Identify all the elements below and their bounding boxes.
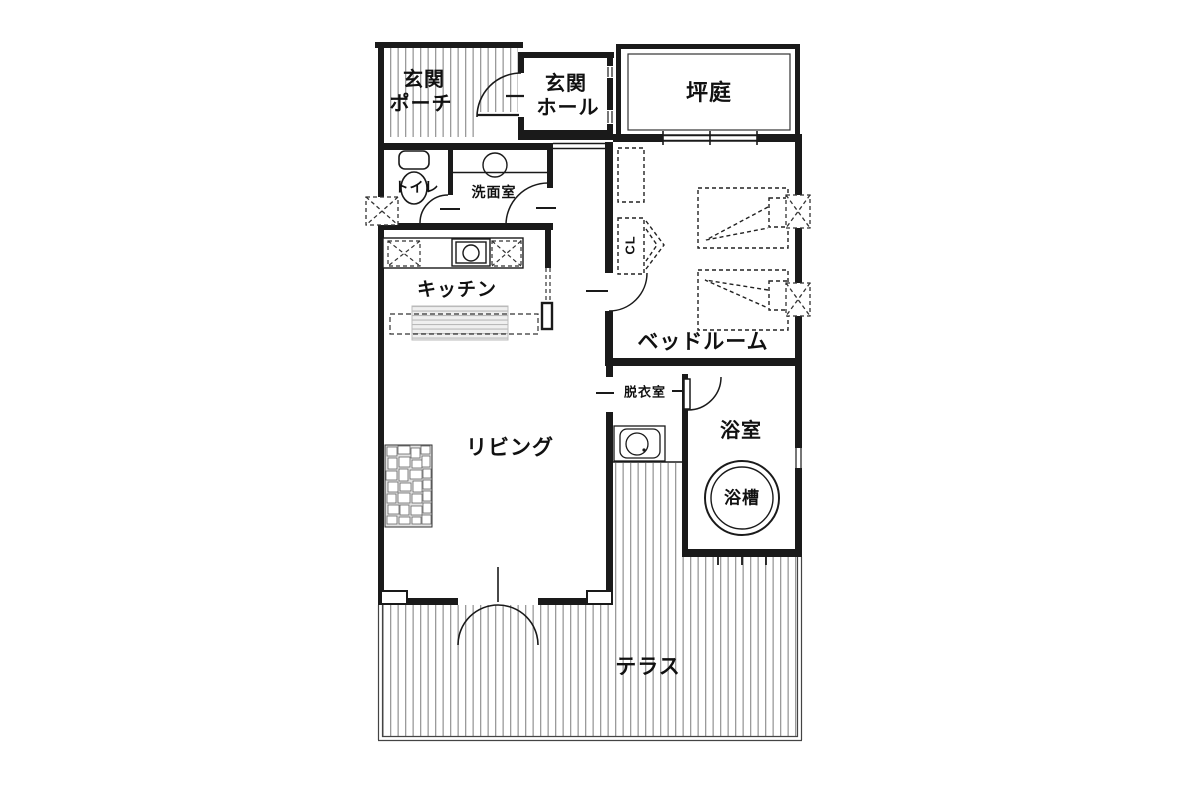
bedroom-closet bbox=[618, 148, 664, 274]
toilet-window bbox=[366, 197, 398, 225]
living-stone-feature bbox=[385, 445, 432, 527]
bed-2-arrow bbox=[705, 280, 768, 308]
corridor-doorway bbox=[553, 144, 605, 149]
bedroom-beds bbox=[698, 188, 788, 330]
washroom-label: 洗面室 bbox=[472, 185, 517, 199]
kitchen-pillar bbox=[542, 303, 552, 329]
hall-label-line1: 玄関 bbox=[545, 74, 587, 94]
bedroom-label: ベッドルーム bbox=[637, 332, 768, 353]
courtyard-window bbox=[663, 131, 757, 145]
bed-2 bbox=[698, 270, 788, 330]
porch-hatch bbox=[383, 47, 518, 137]
bed-1-pillow bbox=[769, 198, 787, 227]
dressing-label: 脱衣室 bbox=[624, 386, 666, 399]
toilet-fixture bbox=[399, 151, 429, 204]
bath-side-window bbox=[794, 448, 803, 468]
kitchen-counter bbox=[383, 238, 523, 268]
bed-1 bbox=[698, 188, 788, 248]
bath-label: 浴室 bbox=[720, 421, 762, 441]
bathtub-label: 浴槽 bbox=[724, 490, 760, 507]
washroom-sink bbox=[453, 153, 547, 177]
bed-1-arrow bbox=[706, 207, 768, 240]
porch-label-line2: ポーチ bbox=[390, 94, 453, 114]
kitchen-label: キッチン bbox=[417, 281, 497, 300]
floor-plan-drawing bbox=[0, 0, 1200, 800]
toilet-label: トイレ bbox=[395, 180, 440, 194]
courtyard-label: 坪庭 bbox=[686, 82, 732, 104]
bedroom-door bbox=[586, 273, 647, 311]
toilet-door bbox=[420, 195, 460, 223]
terrace-label: テラス bbox=[615, 657, 681, 678]
kitchen-pass-through bbox=[542, 268, 552, 329]
kitchen-island bbox=[390, 306, 538, 340]
closet-label: CL bbox=[624, 235, 637, 254]
floor-plan: 玄関 ポーチ 玄関 ホール 坪庭 トイレ 洗面室 キッチン CL ベッドルーム … bbox=[0, 0, 1200, 800]
bathroom bbox=[684, 377, 803, 565]
bath-door bbox=[684, 377, 721, 410]
porch-label-line1: 玄関 bbox=[403, 70, 445, 90]
living-label: リビング bbox=[466, 438, 554, 459]
bed-2-pillow bbox=[769, 281, 787, 310]
hall-label-line2: ホール bbox=[537, 98, 600, 118]
